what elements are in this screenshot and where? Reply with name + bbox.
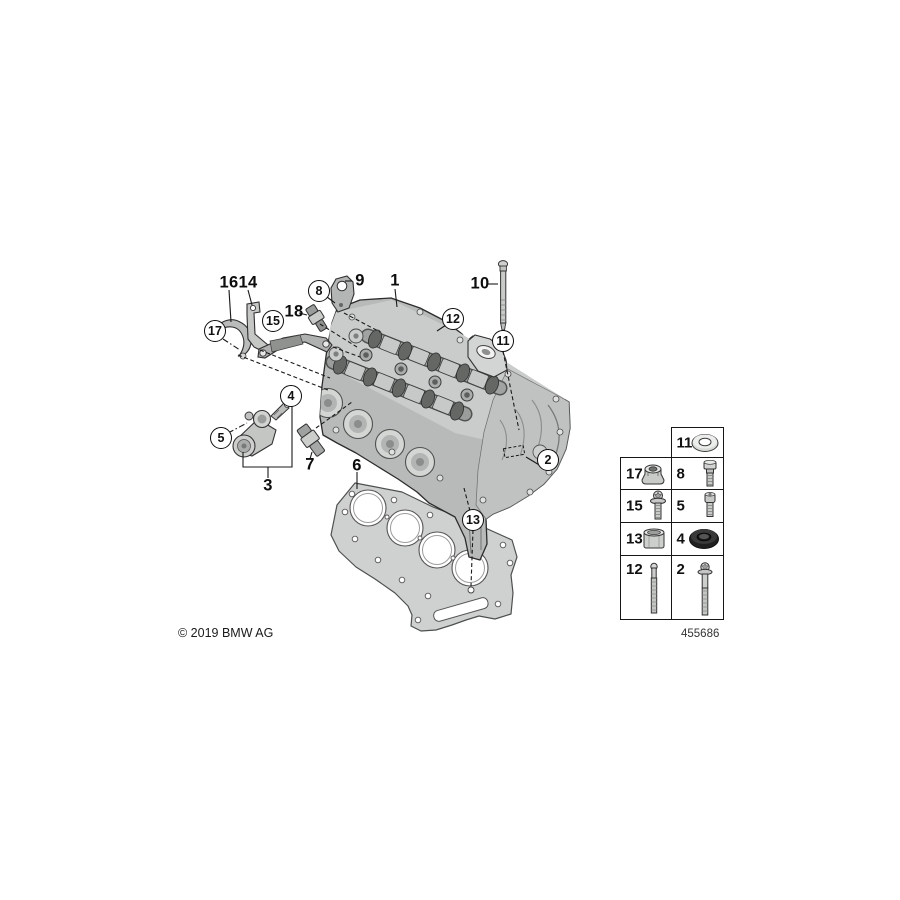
cylinder-head-diagram-art (0, 0, 900, 900)
callout-15[interactable]: 15 (262, 310, 284, 332)
table-cell-label: 2 (677, 561, 685, 578)
high-pressure-pump (233, 403, 290, 458)
table-cell-label: 15 (626, 498, 643, 515)
callout-3[interactable]: 3 (263, 477, 272, 496)
washer-icon (688, 431, 722, 455)
long-flange-bolt-icon (694, 562, 716, 618)
guide-rod (498, 261, 507, 330)
table-cell-8[interactable]: 8 (671, 457, 725, 491)
collar-nut-icon (636, 460, 670, 488)
table-cell-5[interactable]: 5 (671, 489, 725, 524)
camshaft-sensor (304, 303, 330, 333)
table-cell-17[interactable]: 17 (620, 457, 672, 491)
diagram-number: 455686 (681, 628, 719, 640)
copyright-text: © 2019 BMW AG (178, 626, 273, 640)
socket-head-bolt-icon (698, 492, 722, 521)
callout-6[interactable]: 6 (352, 457, 361, 476)
callout-18[interactable]: 18 (285, 303, 304, 322)
support-arm-bracket (258, 334, 332, 358)
callout-9[interactable]: 9 (355, 272, 364, 291)
callout-10[interactable]: 10 (471, 275, 490, 294)
sleeve-icon (636, 526, 670, 552)
table-cell-13[interactable]: 13 (620, 522, 672, 556)
callout-2[interactable]: 2 (537, 449, 559, 471)
hex-bolt-icon (698, 459, 722, 488)
table-cell-2[interactable]: 2 (671, 555, 725, 620)
callout-4[interactable]: 4 (280, 385, 302, 407)
callout-13[interactable]: 13 (462, 509, 484, 531)
table-cell-11[interactable]: 11 (671, 427, 725, 459)
fastener-table: 11 17 8 (620, 427, 724, 621)
callout-17[interactable]: 17 (204, 320, 226, 342)
table-cell-label: 5 (677, 498, 685, 515)
flange-bolt-icon (646, 491, 670, 522)
table-cell-4[interactable]: 4 (671, 522, 725, 556)
seal-ring-icon (686, 526, 722, 552)
callout-11[interactable]: 11 (492, 330, 514, 352)
stud-icon (644, 562, 664, 616)
callout-7[interactable]: 7 (305, 456, 314, 475)
callout-1[interactable]: 1 (390, 272, 399, 291)
callout-14[interactable]: 14 (239, 274, 258, 293)
callout-5[interactable]: 5 (210, 427, 232, 449)
strap-bracket (221, 320, 251, 359)
table-cell-label: 12 (626, 561, 643, 578)
callout-16[interactable]: 16 (220, 274, 239, 293)
table-cell-label: 8 (677, 465, 685, 482)
callout-8[interactable]: 8 (308, 280, 330, 302)
callout-12[interactable]: 12 (442, 308, 464, 330)
table-cell-12[interactable]: 12 (620, 555, 672, 620)
parts-diagram-page: 16 14 8 9 1 10 12 11 17 15 18 4 5 3 7 6 … (0, 0, 900, 900)
table-cell-label: 4 (677, 531, 685, 548)
table-cell-15[interactable]: 15 (620, 489, 672, 524)
